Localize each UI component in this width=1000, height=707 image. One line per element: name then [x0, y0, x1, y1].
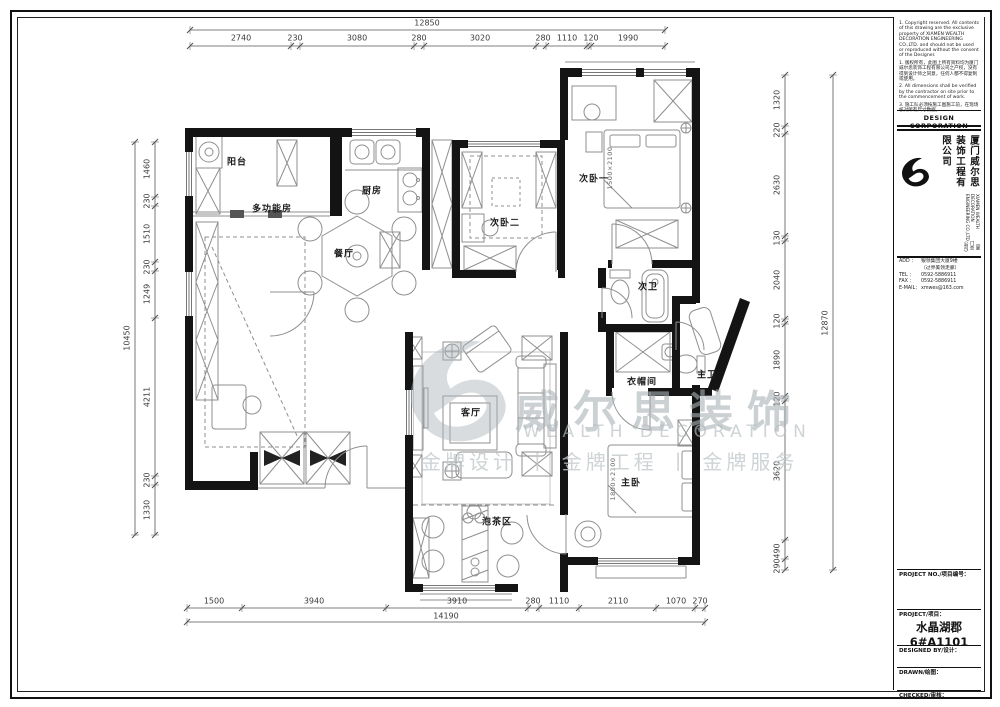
dimension-label: 230: [143, 193, 152, 208]
dimension-label: 1460: [143, 159, 152, 179]
dimension-label: 120: [773, 391, 782, 406]
dimension-label: 3940: [304, 597, 324, 606]
dimension-label: 2110: [608, 597, 628, 606]
dimension-label: 490: [773, 543, 782, 558]
dimension-label: 2040: [773, 270, 782, 290]
dimension-label: 1110: [549, 597, 569, 606]
dimension-label: 1500: [204, 597, 224, 606]
room-label: 多功能房: [252, 202, 292, 215]
title-block-notes: 1. Copyright reserved. All contents of t…: [899, 21, 979, 116]
dimension-label: 280: [411, 34, 426, 43]
dimension-label: 280: [525, 597, 540, 606]
dimension-label: 230: [143, 472, 152, 487]
room-label: 客厅: [461, 406, 481, 419]
dimension-label: 1070: [666, 597, 686, 606]
contact-row: ADD ：银领集团大厦9楼: [899, 259, 979, 266]
dimension-label: 1249: [143, 284, 152, 304]
title-block-field: PROJECT NO./项目编号：: [897, 569, 981, 609]
dimension-label: 120: [773, 313, 782, 328]
dimension-label: 12850: [414, 19, 439, 28]
dimension-label: 230: [143, 259, 152, 274]
dimension-label: 1330: [143, 500, 152, 520]
dimension-label: 4211: [143, 387, 152, 407]
dimension-label: 2740: [231, 34, 251, 43]
dimension-label: 3020: [470, 34, 490, 43]
bed-size-label: 1800×2100: [609, 457, 617, 500]
title-block-field: DRAWN/绘图：: [897, 667, 981, 690]
dimension-label: 1510: [143, 224, 152, 244]
room-label: 衣帽间: [627, 375, 657, 388]
dimension-label: 1990: [618, 34, 638, 43]
note-item: 1. Copyright reserved. All contents of t…: [899, 21, 979, 59]
dimension-label: 130: [773, 230, 782, 245]
dimension-label: 270: [692, 597, 707, 606]
room-label: 主卧: [621, 476, 641, 489]
dimension-label: 3910: [447, 597, 467, 606]
note-item: 2. All dimensions shall be verified by t…: [899, 84, 979, 100]
room-label: 主卫: [697, 368, 717, 381]
field-label: DRAWN/绘图：: [899, 670, 979, 677]
title-block-field: PROJECT/项目：水晶湖郡6#A1101: [897, 609, 981, 645]
company-branch: （厦门总公司）: [938, 241, 980, 255]
dimension-label: 280: [535, 34, 550, 43]
field-label: CHECKED/审核：: [899, 693, 979, 700]
room-label: 次卧一: [579, 172, 609, 185]
title-block-field: DESIGNED BY/设计：: [897, 645, 981, 667]
dimension-label: 1320: [773, 90, 782, 110]
contact-row: E-MAIL：xmwes@163.com: [899, 286, 979, 293]
title-block: 1. Copyright reserved. All contents of t…: [893, 17, 984, 690]
field-value: 水晶湖郡6#A1101: [899, 619, 979, 649]
room-label: 泡茶区: [482, 515, 512, 528]
dimension-label: 1110: [557, 34, 577, 43]
note-item: 1. 版权所有，此图上所有资料均为厦门威尔思装饰工程有限公司之产权，没有得到设计…: [899, 61, 979, 83]
room-label: 次卫: [638, 280, 658, 293]
dimension-label: 120: [583, 34, 598, 43]
contact-row: （过界美领走廊）: [899, 266, 979, 273]
dimension-label: 230: [287, 34, 302, 43]
dimension-label: 12870: [821, 310, 830, 335]
company-logo-icon: [899, 147, 933, 199]
dimension-label: 10450: [123, 325, 132, 350]
dimension-label: 1890: [773, 350, 782, 370]
dimension-label: 290: [773, 558, 782, 573]
design-corporation-label: DESIGN CORPORATION: [897, 114, 981, 130]
bed-size-label: 1500×2100: [606, 146, 614, 189]
dimension-label: 14190: [433, 612, 458, 621]
note-item: 3. 施工队必须按施工图施工前，在现场核对所有尺寸数据。: [899, 103, 979, 114]
field-label: PROJECT NO./项目编号：: [899, 572, 979, 579]
dimension-label: 3080: [347, 34, 367, 43]
dimension-label: 2630: [773, 175, 782, 195]
company-contact: ADD ：银领集团大厦9楼（过界美领走廊）TEL ：0592-5886911FA…: [899, 259, 979, 293]
room-label: 厨房: [362, 184, 382, 197]
room-label: 餐厅: [334, 247, 354, 260]
plan-label-layer: 1285027402303080280302028011101201990150…: [0, 0, 1000, 707]
room-label: 阳台: [227, 155, 247, 168]
floor-plan-sheet: 威尔思装饰 WEALTH DECORATION 金牌设计 丨 金牌工程 丨 金牌…: [0, 0, 1000, 707]
field-label: DESIGNED BY/设计：: [899, 648, 979, 655]
company-name-cn: 厦门威尔思装饰工程有限公司: [938, 135, 980, 193]
room-label: 次卧二: [490, 216, 520, 229]
company-name-en: XIAMEN WEALTH DECORATION ENGINEERING CO.…: [938, 194, 980, 241]
dimension-label: 3620: [773, 461, 782, 481]
company-section: 厦门威尔思装饰工程有限公司 XIAMEN WEALTH DECORATION E…: [897, 133, 981, 257]
title-block-field: CHECKED/审核：: [897, 690, 981, 707]
dimension-label: 220: [773, 122, 782, 137]
